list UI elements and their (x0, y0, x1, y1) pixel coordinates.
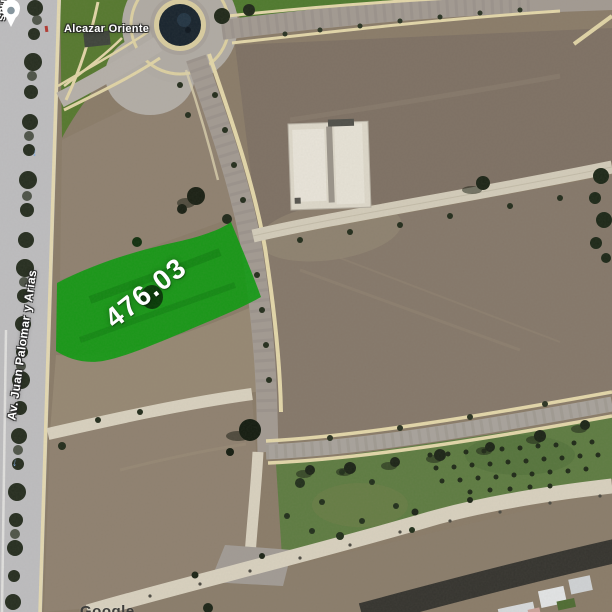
texture-overlay (0, 0, 612, 612)
google-watermark: Google (80, 603, 135, 612)
place-pin-icon[interactable] (0, 0, 22, 28)
map-canvas[interactable]: Arias Alcazar Oriente Av. Juan Palomar y… (0, 0, 612, 612)
place-label: Alcazar Oriente (64, 23, 149, 35)
satellite-imagery (0, 0, 612, 612)
